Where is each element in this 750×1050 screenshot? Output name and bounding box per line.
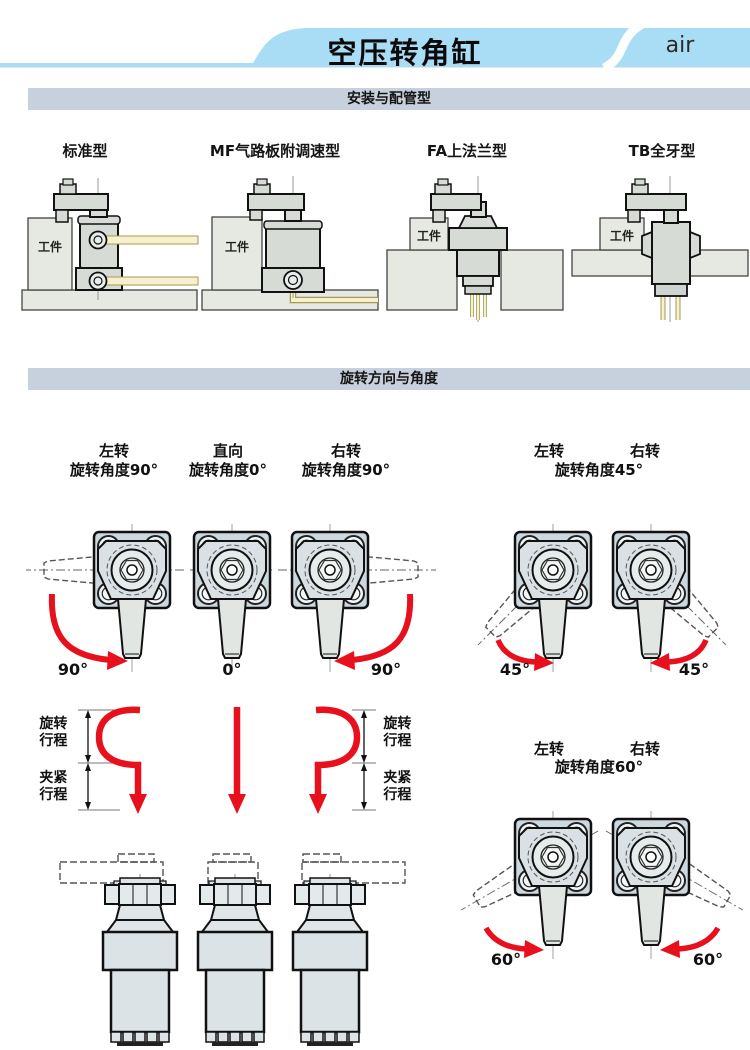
angle-label: 90° [356, 660, 416, 679]
clamp-unit-right90 [278, 524, 436, 672]
rotation-dir-label: 右转 [605, 440, 685, 461]
air-tubes [472, 292, 485, 320]
mounting-type-label: FA上法兰型 [357, 140, 577, 161]
angle-label: 60° [678, 950, 738, 969]
stroke-diagram [78, 707, 376, 814]
rotation-caption: 旋转角度60° [519, 756, 679, 777]
cylinder-side-center [198, 854, 272, 1046]
clamp-arm [626, 194, 686, 210]
clamp-unit-60-left [454, 811, 605, 959]
angle-label: 45° [664, 660, 724, 679]
clamp-unit-45-left [468, 523, 600, 672]
angle-label: 45° [485, 660, 545, 679]
brand-air: air [650, 33, 710, 58]
left-stroke-arrow [99, 710, 140, 796]
red-arrow [660, 940, 680, 958]
cylinder-side-left [60, 854, 177, 1046]
rotation-caption: 旋转角度90° [266, 459, 426, 480]
rotation-caption: 旋转角度45° [519, 459, 679, 480]
clamp-arm [54, 194, 108, 210]
clamp-unit-straight [190, 524, 274, 672]
top-flange [449, 228, 507, 250]
rotation-dir-label: 右转 [266, 440, 426, 461]
workpiece-label: 工件 [602, 227, 642, 244]
rotate-stroke-label: 旋转行程 [382, 716, 413, 750]
workpiece-label: 工件 [409, 227, 449, 244]
clamp-stroke-label: 夹紧行程 [38, 770, 69, 804]
mounting-type-label: TB全牙型 [552, 140, 750, 161]
clamp-arm [431, 194, 481, 210]
section-bar-rotation: 旋转方向与角度 [28, 368, 750, 390]
page-title: 空压转角缸 [280, 30, 530, 72]
mounting-type-label: MF气路板附调速型 [165, 140, 385, 161]
angle-label: 90° [43, 660, 103, 679]
section-bar-mounting: 安装与配管型 [28, 88, 750, 110]
clamp-stroke-label: 夹紧行程 [382, 770, 413, 804]
clamp-unit-60-right [599, 811, 750, 959]
catalog-page: 空压转角缸 air 安装与配管型 标准型 MF气路板附调速型 FA上法兰型 TB… [0, 0, 750, 1050]
fa-flange-type-drawing [387, 176, 563, 322]
angle-label: 0° [202, 660, 262, 679]
angle-label: 60° [476, 950, 536, 969]
workpiece-label: 工件 [217, 238, 257, 255]
rotate-stroke-label: 旋转行程 [38, 716, 69, 750]
rotation-dir-label: 左转 [509, 440, 589, 461]
clamp-arm [248, 194, 304, 210]
clamp-unit-left90 [26, 524, 184, 672]
cylinder-side-right [293, 854, 405, 1046]
workpiece-label: 工件 [30, 238, 70, 255]
tb-threaded-type-drawing [572, 176, 748, 322]
clamp-unit-45-right [604, 523, 736, 672]
right-stroke-arrow [316, 710, 357, 796]
